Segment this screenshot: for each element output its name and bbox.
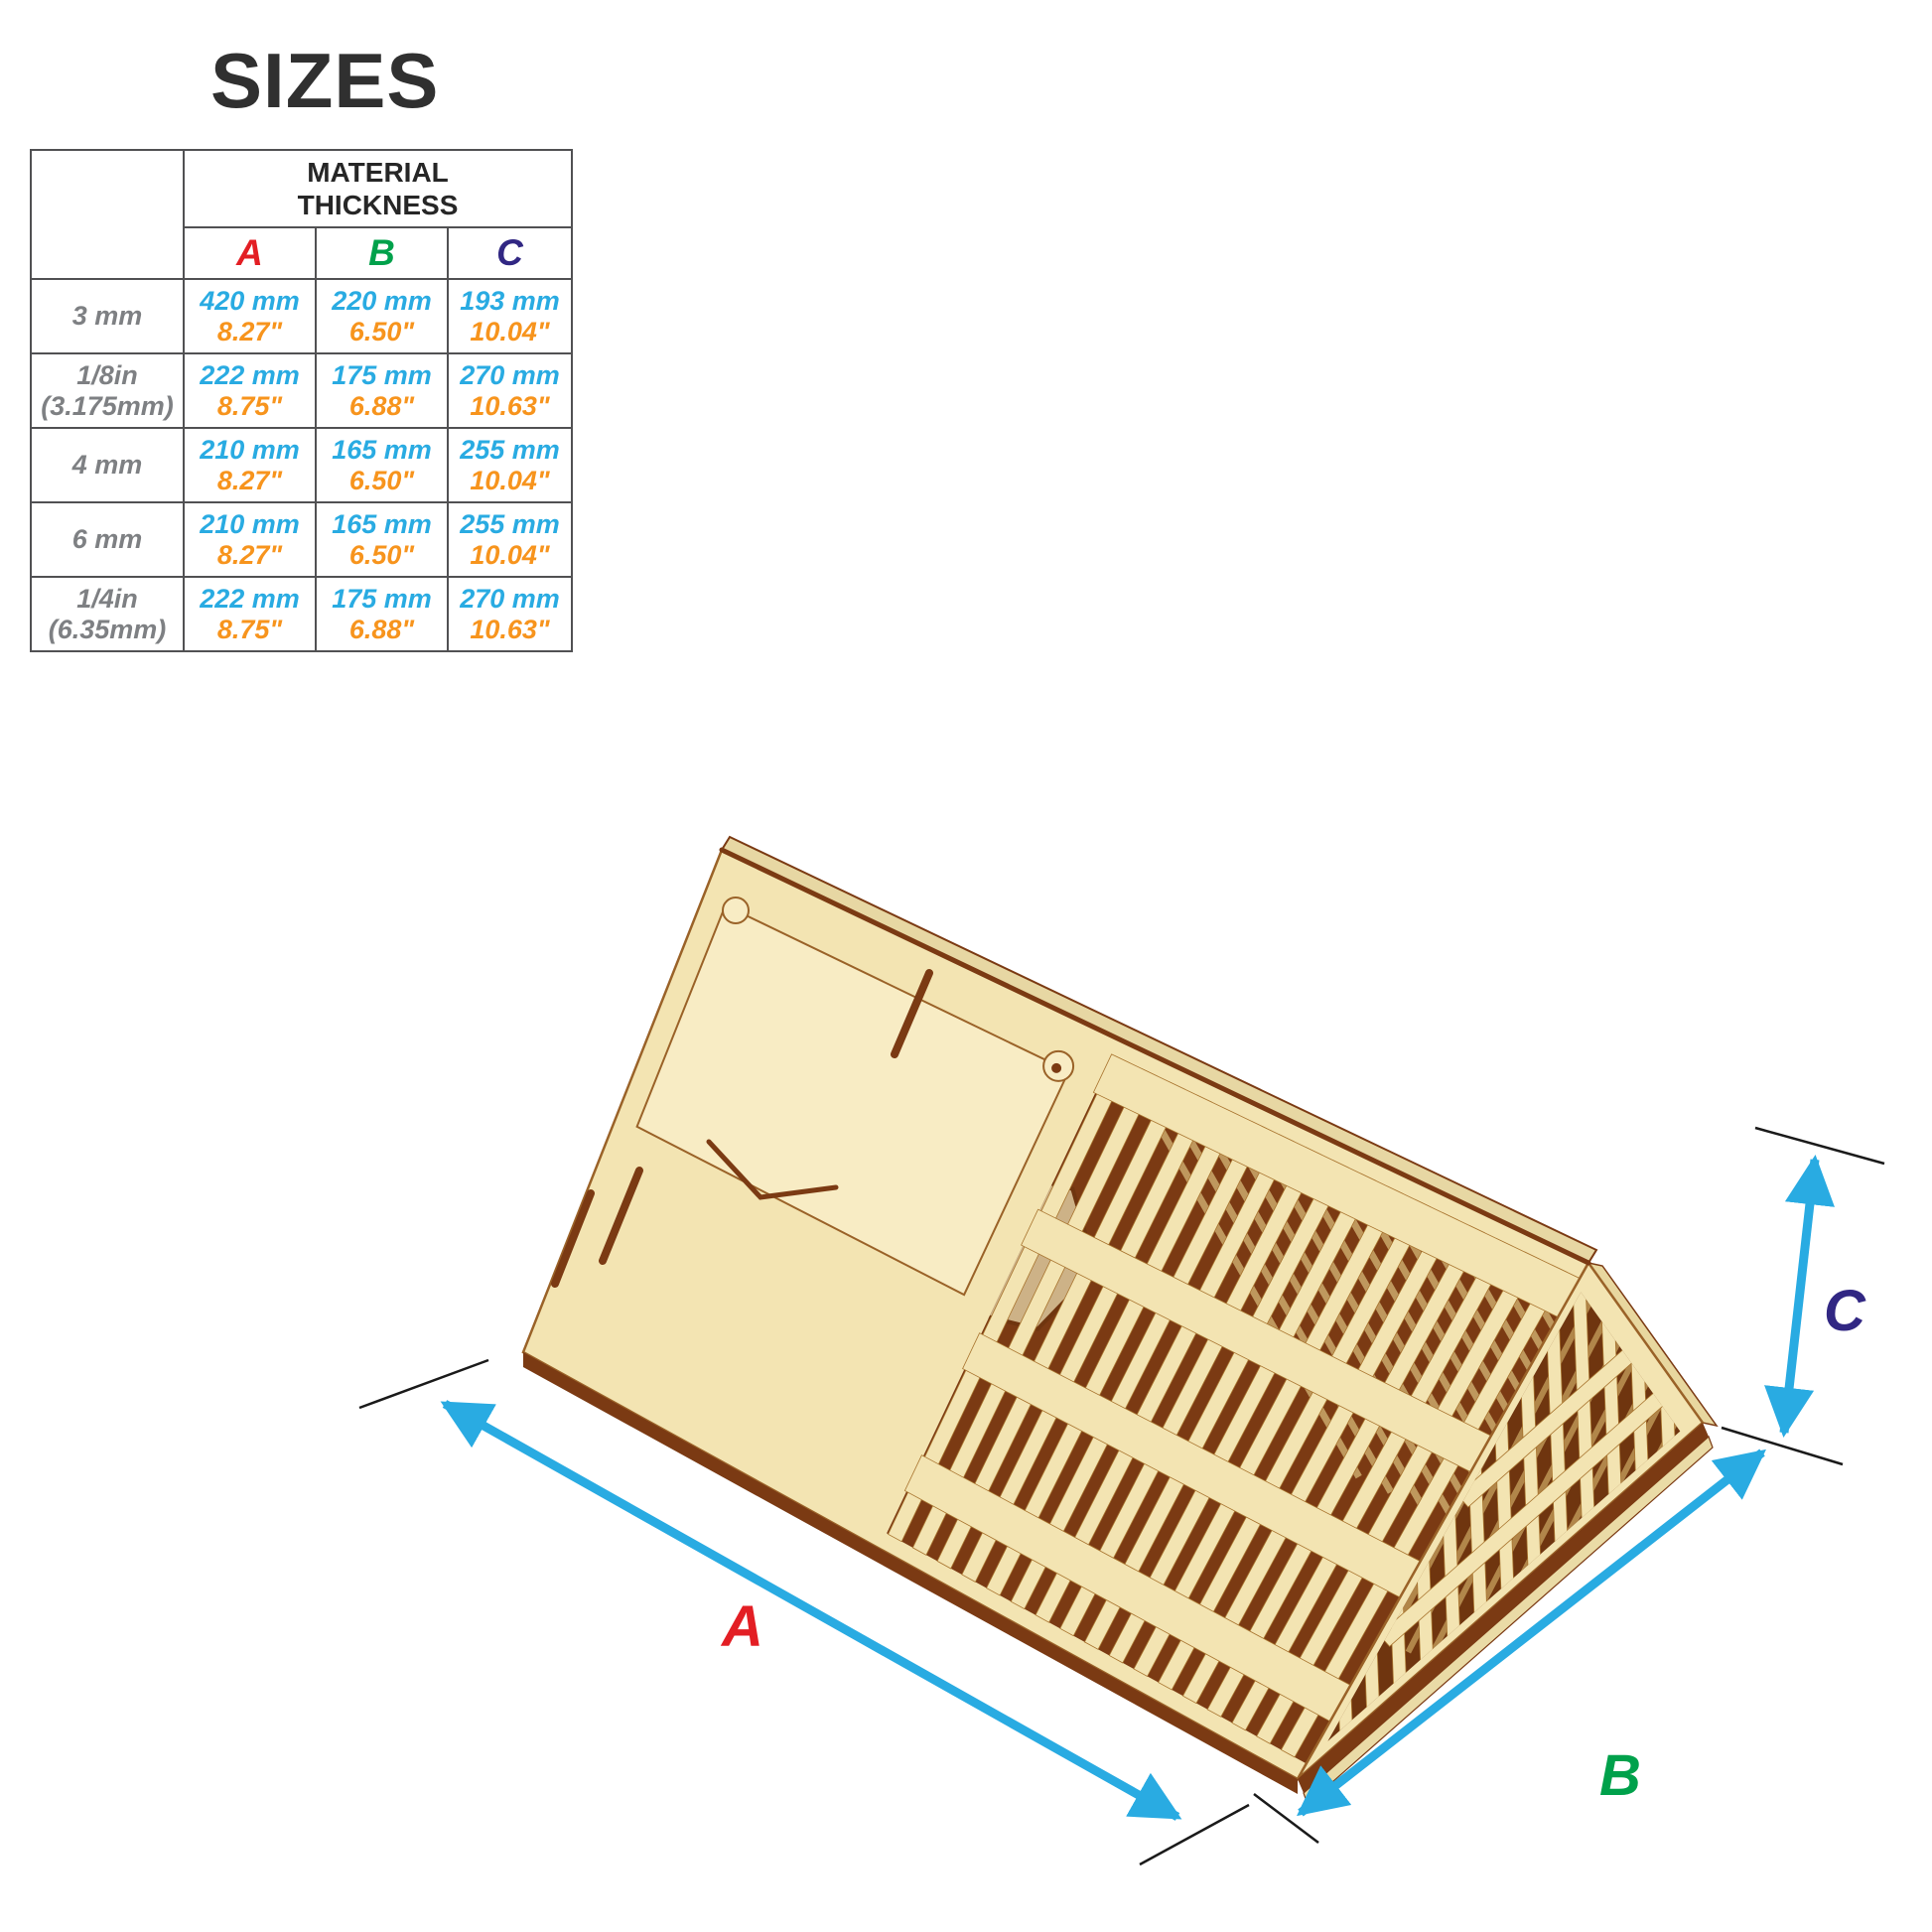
tent-structure	[523, 837, 1839, 1804]
infographic-page: SIZES MATERIAL THICKNESS A B C 3 mm 420 …	[0, 0, 1932, 1932]
dimension-label-a: A	[720, 1594, 763, 1659]
dimension-label-c: C	[1824, 1279, 1866, 1343]
product-illustration: A B C	[0, 0, 1932, 1932]
dimension-label-b: B	[1599, 1743, 1641, 1808]
dimension-arrow-c	[1784, 1160, 1815, 1433]
